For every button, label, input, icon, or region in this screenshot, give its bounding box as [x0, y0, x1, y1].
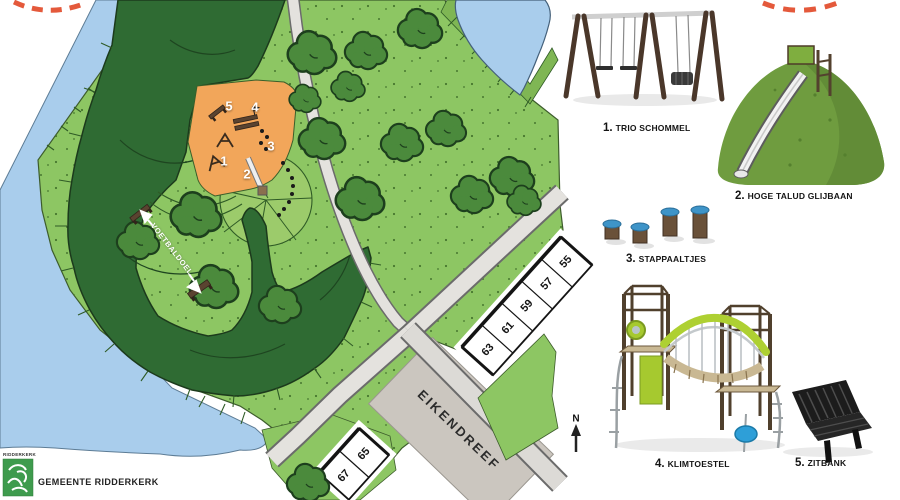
- ridderkerk-logo: [3, 459, 33, 496]
- climbing-structure-illustration: [609, 286, 785, 452]
- municipality-name: GEMEENTE RIDDERKERK: [38, 477, 159, 487]
- post: [631, 223, 654, 249]
- stepping-posts-illustration: [603, 206, 715, 249]
- legend-number: 2.: [735, 190, 745, 202]
- legend-item-2: 2. HOGE TALUD GLIJBAAN: [735, 190, 853, 202]
- dashed-marker-right: [763, 2, 840, 10]
- map-marker-4: 4: [251, 100, 258, 115]
- legend-number: 3.: [626, 253, 636, 265]
- map-marker-5: 5: [225, 99, 232, 114]
- legend-label: TRIO SCHOMMEL: [616, 123, 691, 133]
- logo-small-text: RIDDERKERK: [3, 452, 36, 457]
- legend-number: 1.: [603, 122, 613, 134]
- legend-label: HOGE TALUD GLIJBAAN: [748, 191, 853, 201]
- legend-label: STAPPAALTJES: [639, 254, 707, 264]
- legend-label: KLIMTOESTEL: [668, 459, 730, 469]
- legend-number: 4.: [655, 458, 665, 470]
- legend-item-1: 1. TRIO SCHOMMEL: [603, 122, 690, 134]
- legend-number: 5.: [795, 457, 805, 469]
- swing-illustration: [566, 13, 722, 106]
- dashed-marker-left: [14, 2, 86, 10]
- north-label: N: [572, 414, 579, 425]
- post: [603, 220, 626, 245]
- map-marker-2: 2: [243, 167, 250, 182]
- map-marker-3: 3: [267, 139, 274, 154]
- legend-item-3: 3. STAPPAALTJES: [626, 253, 706, 265]
- north-arrow: [571, 424, 581, 452]
- legend-item-4: 4. KLIMTOESTEL: [655, 458, 730, 470]
- hill-slide-illustration: [718, 46, 884, 185]
- post: [661, 208, 684, 242]
- post: [691, 206, 715, 244]
- playground-plan-page: { "map": { "markers": ["1","2","3","4","…: [0, 0, 900, 500]
- bench-illustration: [783, 380, 873, 463]
- legend-label: ZITBANK: [808, 458, 847, 468]
- map-marker-1: 1: [220, 154, 227, 169]
- legend-item-5: 5. ZITBANK: [795, 457, 846, 469]
